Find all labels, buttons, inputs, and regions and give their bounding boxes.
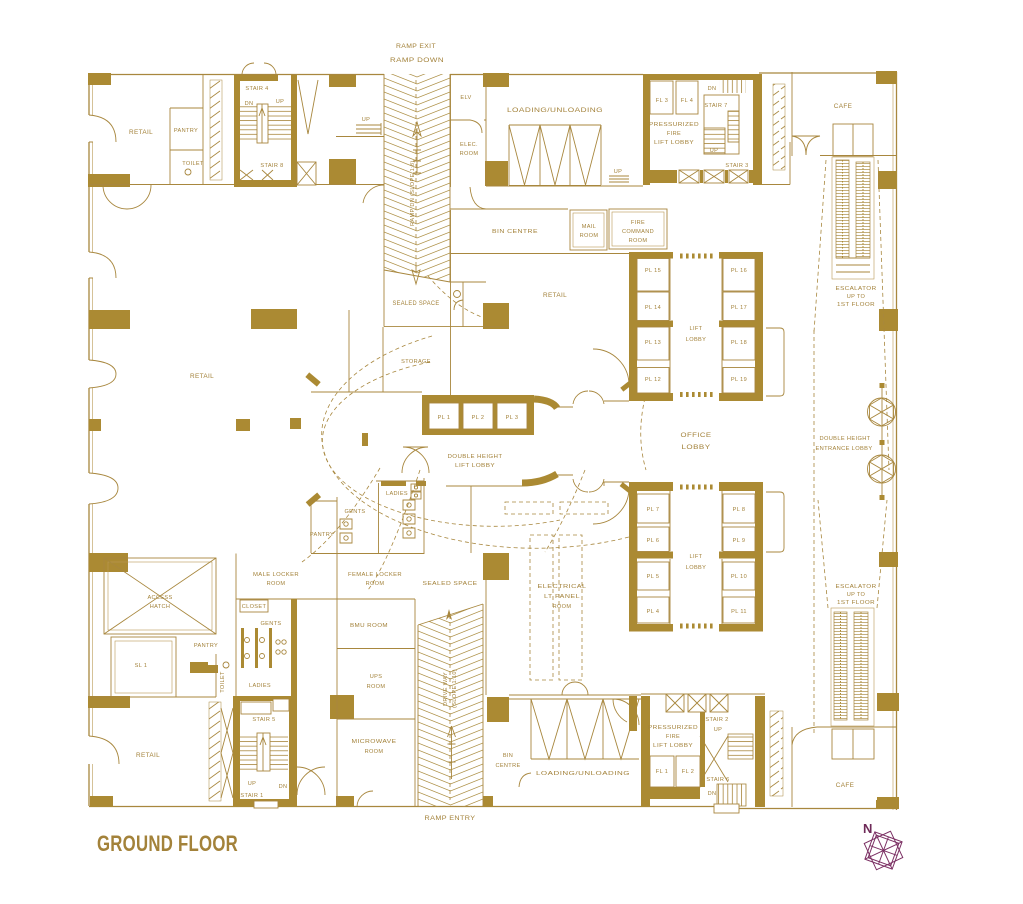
svg-text:ESCALATOR: ESCALATOR xyxy=(836,584,877,590)
svg-text:TOILET: TOILET xyxy=(182,161,204,167)
svg-text:PANTRY: PANTRY xyxy=(194,643,218,649)
svg-text:DN: DN xyxy=(279,784,288,790)
svg-text:RAMP EXIT: RAMP EXIT xyxy=(396,43,436,50)
svg-text:PL 3: PL 3 xyxy=(506,415,519,421)
svg-text:FL 4: FL 4 xyxy=(681,98,693,104)
svg-text:LOBBY: LOBBY xyxy=(682,444,711,451)
svg-text:CLOSET: CLOSET xyxy=(242,604,267,610)
svg-text:PANTRY: PANTRY xyxy=(310,532,334,538)
svg-text:ELEC.: ELEC. xyxy=(460,142,478,148)
svg-text:ROOM: ROOM xyxy=(366,581,385,587)
svg-text:ROOM: ROOM xyxy=(580,233,599,239)
svg-text:PL 8: PL 8 xyxy=(733,507,746,513)
svg-text:PL 9: PL 9 xyxy=(733,538,746,544)
svg-text:N: N xyxy=(863,821,873,836)
svg-text:1ST FLOOR: 1ST FLOOR xyxy=(837,600,875,606)
svg-text:STAIR 8: STAIR 8 xyxy=(260,163,283,169)
svg-text:SEALED SPACE: SEALED SPACE xyxy=(423,581,478,587)
svg-text:ACCESS: ACCESS xyxy=(147,595,172,601)
svg-text:ROOM: ROOM xyxy=(553,604,572,610)
svg-text:BIN CENTRE: BIN CENTRE xyxy=(492,229,538,235)
svg-text:PL 13: PL 13 xyxy=(645,340,661,346)
svg-text:DRIVE WAY: DRIVE WAY xyxy=(443,672,449,706)
svg-text:UP: UP xyxy=(362,117,370,123)
svg-text:DN: DN xyxy=(708,791,717,797)
svg-text:PL 4: PL 4 xyxy=(647,609,660,615)
svg-text:LIFT LOBBY: LIFT LOBBY xyxy=(653,743,693,749)
svg-text:(SLOPE 1:10): (SLOPE 1:10) xyxy=(452,669,458,708)
svg-text:PL 17: PL 17 xyxy=(731,305,747,311)
svg-text:STORAGE: STORAGE xyxy=(401,359,431,365)
svg-text:GROUND FLOOR: GROUND FLOOR xyxy=(97,831,238,856)
svg-text:DN: DN xyxy=(708,86,717,92)
svg-text:SEALED SPACE: SEALED SPACE xyxy=(393,300,440,307)
svg-text:UP: UP xyxy=(276,99,284,105)
svg-text:RAMP ENTRY: RAMP ENTRY xyxy=(425,815,476,822)
svg-text:RAMP DOWN: RAMP DOWN xyxy=(390,57,444,64)
svg-text:PL 5: PL 5 xyxy=(647,574,660,580)
svg-text:SL 1: SL 1 xyxy=(135,663,148,669)
svg-text:PL 12: PL 12 xyxy=(645,377,661,383)
svg-text:MAIL: MAIL xyxy=(582,224,596,230)
svg-text:FL 3: FL 3 xyxy=(656,98,668,104)
svg-text:STAIR 3: STAIR 3 xyxy=(725,163,748,169)
svg-text:STAIR 7: STAIR 7 xyxy=(704,103,727,109)
svg-text:ELV: ELV xyxy=(460,95,471,101)
svg-text:PL 10: PL 10 xyxy=(731,574,747,580)
svg-text:STAIR 2: STAIR 2 xyxy=(705,717,728,723)
svg-text:1ST FLOOR: 1ST FLOOR xyxy=(837,302,875,308)
svg-text:ENTRANCE LOBBY: ENTRANCE LOBBY xyxy=(816,446,873,452)
svg-text:LOADING/UNLOADING: LOADING/UNLOADING xyxy=(507,107,603,114)
svg-text:PL 11: PL 11 xyxy=(731,609,747,615)
svg-text:MALE LOCKER: MALE LOCKER xyxy=(253,572,299,578)
svg-text:LOBBY: LOBBY xyxy=(686,337,706,343)
svg-text:PL 14: PL 14 xyxy=(645,305,661,311)
svg-text:GENTS: GENTS xyxy=(260,621,281,627)
svg-text:BMU ROOM: BMU ROOM xyxy=(350,623,388,629)
svg-text:UPS: UPS xyxy=(370,674,383,680)
svg-text:LIFT LOBBY: LIFT LOBBY xyxy=(654,140,694,146)
svg-text:ROOM: ROOM xyxy=(629,238,648,244)
svg-text:PL 1: PL 1 xyxy=(438,415,451,421)
svg-text:PL 19: PL 19 xyxy=(731,377,747,383)
svg-text:RETAIL: RETAIL xyxy=(543,292,567,299)
svg-text:UP TO: UP TO xyxy=(847,294,866,300)
svg-text:FEMALE LOCKER: FEMALE LOCKER xyxy=(348,572,402,578)
svg-text:LADIES: LADIES xyxy=(249,683,271,689)
svg-text:LIFT LOBBY: LIFT LOBBY xyxy=(455,463,495,469)
svg-text:UP TO: UP TO xyxy=(847,592,866,598)
svg-text:ELECTRICAL: ELECTRICAL xyxy=(538,584,587,590)
svg-text:GENTS: GENTS xyxy=(344,509,365,515)
svg-text:STAIR 4: STAIR 4 xyxy=(245,86,268,92)
svg-text:MICROWAVE: MICROWAVE xyxy=(352,739,397,745)
svg-text:PL 16: PL 16 xyxy=(731,268,747,274)
svg-text:ROOM: ROOM xyxy=(267,581,286,587)
svg-text:DOUBLE HEIGHT: DOUBLE HEIGHT xyxy=(448,454,503,460)
svg-text:PL 18: PL 18 xyxy=(731,340,747,346)
svg-text:ROOM: ROOM xyxy=(460,151,479,157)
svg-text:PANTRY: PANTRY xyxy=(174,128,198,134)
svg-text:PRESSURIZED: PRESSURIZED xyxy=(648,725,698,731)
svg-text:UP: UP xyxy=(714,727,722,733)
svg-text:CAFE: CAFE xyxy=(836,782,854,789)
svg-text:PL 6: PL 6 xyxy=(647,538,660,544)
svg-text:PRESSURIZED: PRESSURIZED xyxy=(649,122,699,128)
svg-text:STAIR 6: STAIR 6 xyxy=(706,777,729,783)
svg-text:OFFICE: OFFICE xyxy=(681,432,712,439)
svg-text:DOUBLE HEIGHT: DOUBLE HEIGHT xyxy=(820,436,871,442)
svg-text:FIRE: FIRE xyxy=(667,131,681,137)
svg-text:STAIR 5: STAIR 5 xyxy=(252,717,275,723)
svg-text:LIFT: LIFT xyxy=(690,326,703,332)
svg-text:HATCH: HATCH xyxy=(150,604,171,610)
svg-text:COMMAND: COMMAND xyxy=(622,229,654,235)
svg-text:FIRE: FIRE xyxy=(666,734,680,740)
svg-text:LT PANEL: LT PANEL xyxy=(544,594,580,600)
svg-text:FIRE: FIRE xyxy=(631,220,645,226)
svg-text:LIFT: LIFT xyxy=(690,554,703,560)
svg-text:TOILET: TOILET xyxy=(220,671,226,693)
svg-text:PL 15: PL 15 xyxy=(645,268,661,274)
svg-text:UP: UP xyxy=(614,169,622,175)
svg-text:PL 2: PL 2 xyxy=(472,415,485,421)
svg-text:PL 7: PL 7 xyxy=(647,507,660,513)
svg-text:RETAIL: RETAIL xyxy=(190,373,214,380)
svg-text:FL 1: FL 1 xyxy=(656,769,668,775)
svg-text:CAFE: CAFE xyxy=(834,103,852,110)
svg-text:ESCALATOR: ESCALATOR xyxy=(836,286,877,292)
svg-text:ROOM: ROOM xyxy=(367,684,386,690)
svg-text:STAIR 1: STAIR 1 xyxy=(240,793,263,799)
svg-text:RETAIL: RETAIL xyxy=(136,752,160,759)
svg-text:ROOM: ROOM xyxy=(365,749,384,755)
svg-text:LADIES: LADIES xyxy=(386,491,408,497)
svg-text:FL 2: FL 2 xyxy=(682,769,694,775)
svg-text:LOBBY: LOBBY xyxy=(686,565,706,571)
svg-text:BIN: BIN xyxy=(503,753,513,759)
svg-text:UP: UP xyxy=(710,148,718,154)
svg-text:LOADING/UNLOADING: LOADING/UNLOADING xyxy=(536,771,630,777)
svg-text:RETAIL: RETAIL xyxy=(129,129,153,136)
svg-text:CENTRE: CENTRE xyxy=(495,763,520,769)
svg-text:RAMP DN (SLOPE 1:8): RAMP DN (SLOPE 1:8) xyxy=(410,160,416,226)
svg-text:UP: UP xyxy=(248,781,256,787)
